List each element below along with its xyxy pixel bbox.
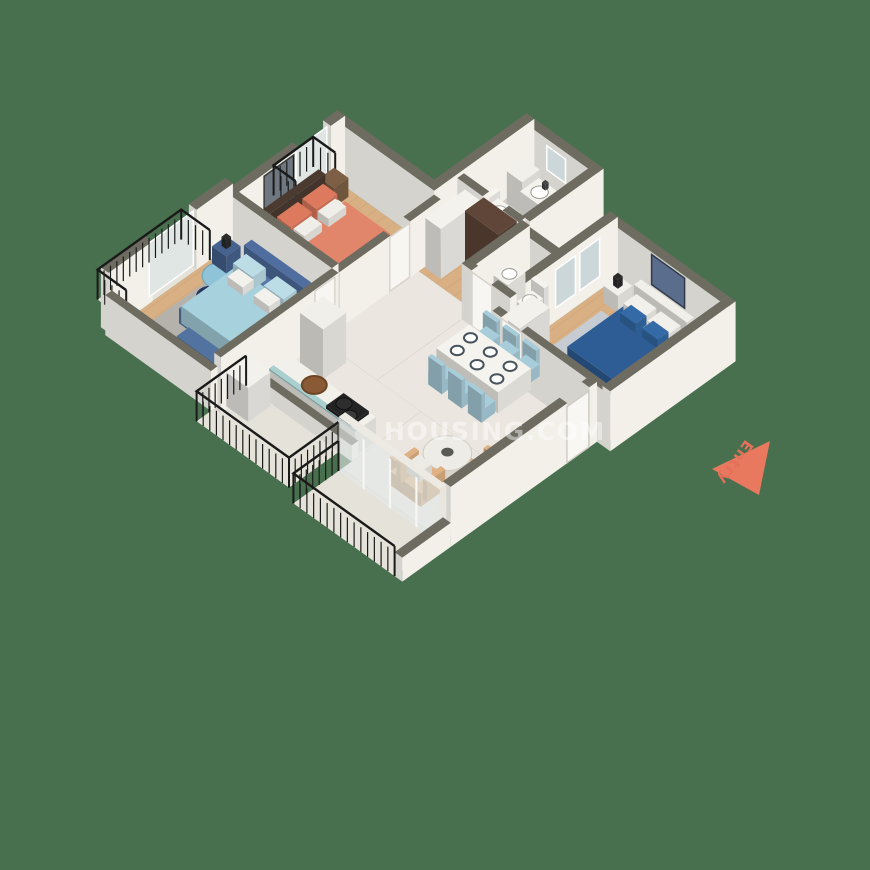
- dining-chair-4: [442, 364, 446, 395]
- wall-bedroom-blue-east: [603, 386, 611, 452]
- plate-3: [504, 362, 517, 371]
- dining-chair-6: [482, 392, 486, 423]
- glass-wall-mullion-1: [363, 439, 365, 491]
- page: { "background": "#48704e", "watermark": …: [0, 0, 870, 870]
- glass-wall-mullion-3: [415, 477, 417, 529]
- dining-chair-5: [462, 378, 466, 409]
- plate-6: [490, 374, 503, 383]
- coffee-table-decor: [441, 448, 453, 457]
- plate-4: [451, 346, 464, 355]
- wall-bathroom-mid-south-a: [462, 263, 472, 326]
- plate-1: [464, 333, 477, 342]
- kitchen-sink: [302, 376, 327, 394]
- stove-pot-1: [336, 398, 352, 410]
- floor-plan-render: [0, 0, 870, 870]
- plate-5: [471, 360, 484, 369]
- sink-basin-mid-bath: [502, 269, 517, 280]
- wall-entry-east-a: [589, 382, 597, 448]
- glass-wall-mullion-2: [389, 458, 391, 510]
- plate-2: [484, 347, 497, 356]
